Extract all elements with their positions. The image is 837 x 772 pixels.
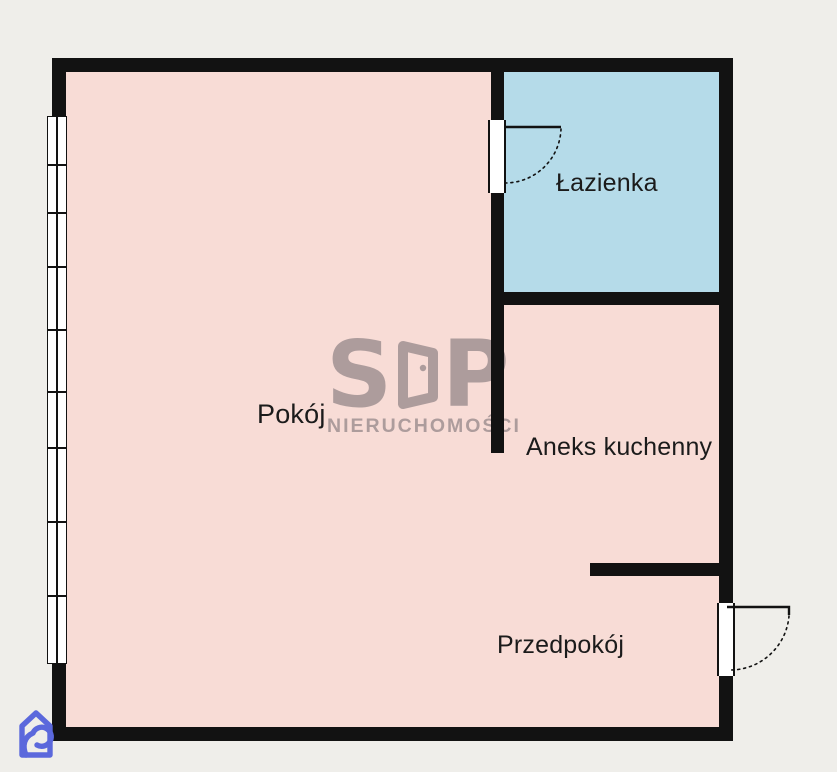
house-spiral-logo-icon	[11, 703, 61, 761]
wall-left-upper	[52, 58, 66, 116]
watermark-door-glyph-icon	[403, 346, 433, 404]
wall-top	[52, 58, 733, 72]
window-tick	[48, 391, 66, 393]
window-tick	[48, 329, 66, 331]
door-opening-entrance	[717, 603, 735, 676]
label-pokoj: Pokój	[257, 399, 326, 430]
floorplan-canvas: S P NIERUCHOMOŚCI	[0, 0, 837, 772]
window-symbol	[47, 116, 67, 664]
wall-lazienka-bottom	[491, 292, 733, 305]
window-tick	[48, 521, 66, 523]
wall-bottom	[52, 727, 733, 741]
door-opening-lazienka	[488, 120, 506, 193]
window-tick	[48, 447, 66, 449]
window-tick	[48, 266, 66, 268]
window-tick	[48, 212, 66, 214]
label-przedpokoj: Przedpokój	[497, 631, 624, 660]
window-glass-line	[56, 117, 58, 663]
door-swing-entrance-icon	[727, 607, 789, 670]
watermark-letter-s: S	[326, 321, 392, 428]
window-tick	[48, 595, 66, 597]
window-tick	[48, 164, 66, 166]
label-lazienka: Łazienka	[556, 169, 658, 198]
wall-przedpokoj-top	[590, 563, 733, 576]
label-aneks-kuchenny: Aneks kuchenny	[526, 433, 712, 462]
